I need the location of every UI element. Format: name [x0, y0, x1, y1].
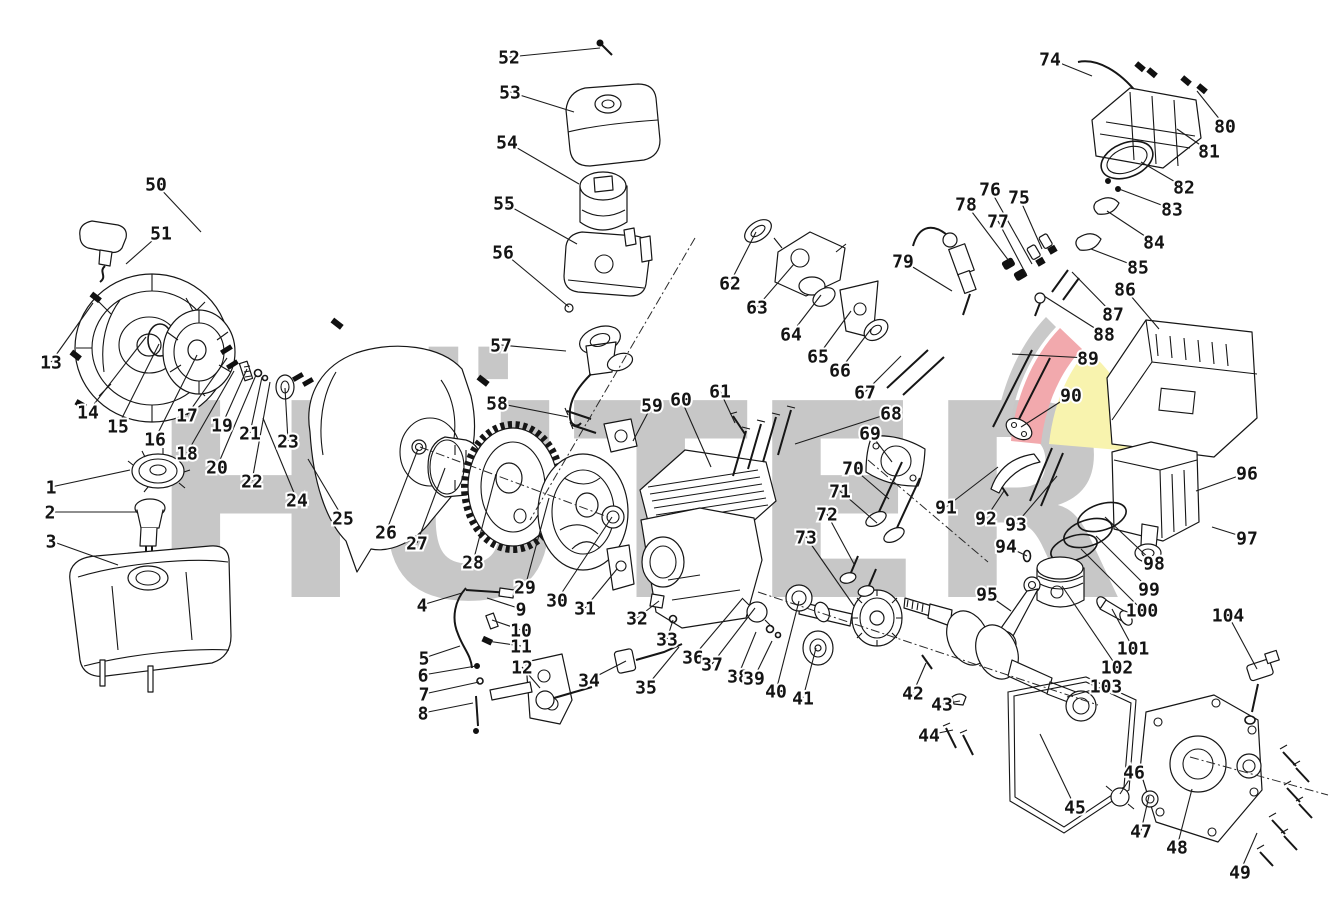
part-label-8: 8	[418, 704, 429, 725]
part-label-48: 48	[1166, 838, 1188, 859]
part-label-76: 76	[979, 180, 1001, 201]
part-label-68: 68	[880, 404, 902, 425]
part-label-22: 22	[241, 472, 263, 493]
part-label-85: 85	[1127, 258, 1149, 279]
starter-grip	[80, 221, 127, 282]
part-label-80: 80	[1214, 117, 1236, 138]
part-label-30: 30	[546, 591, 568, 612]
fuel-tank	[70, 546, 231, 692]
leader-line-45	[1040, 734, 1075, 807]
part-label-104: 104	[1212, 606, 1245, 627]
part-label-52: 52	[498, 48, 520, 69]
part-label-98: 98	[1143, 554, 1165, 575]
part-label-35: 35	[635, 678, 657, 699]
part-label-89: 89	[1077, 349, 1099, 370]
part-label-53: 53	[499, 83, 521, 104]
part-label-27: 27	[406, 534, 428, 555]
part-label-20: 20	[206, 458, 228, 479]
part-label-3: 3	[46, 532, 57, 553]
part-label-40: 40	[765, 682, 787, 703]
part-label-12: 12	[511, 658, 533, 679]
part-label-69: 69	[859, 424, 881, 445]
part-label-79: 79	[892, 252, 914, 273]
cover-bolts	[1257, 745, 1312, 866]
diagram-canvas: HÜTER	[0, 0, 1339, 912]
part-label-72: 72	[816, 505, 838, 526]
part-label-71: 71	[829, 482, 851, 503]
part-label-83: 83	[1161, 200, 1183, 221]
part-label-96: 96	[1236, 464, 1258, 485]
part-label-101: 101	[1117, 639, 1150, 660]
part-label-25: 25	[332, 509, 354, 530]
leader-line-6	[423, 666, 476, 675]
part-label-92: 92	[975, 509, 997, 530]
part-label-6: 6	[418, 666, 429, 687]
part-label-42: 42	[902, 684, 924, 705]
part-label-32: 32	[626, 609, 648, 630]
part-label-13: 13	[40, 353, 62, 374]
part-label-50: 50	[145, 175, 167, 196]
part-label-18: 18	[176, 444, 198, 465]
valve-cover-box	[1107, 320, 1257, 457]
part-label-7: 7	[419, 685, 430, 706]
part-label-77: 77	[987, 212, 1009, 233]
leader-line-8	[423, 703, 473, 713]
air-filter-base	[564, 228, 652, 296]
exploded-diagram-page: HÜTER	[0, 0, 1339, 912]
front-bearing	[602, 506, 624, 528]
part-label-60: 60	[670, 390, 692, 411]
air-filter-cover	[566, 84, 660, 166]
part-label-44: 44	[918, 726, 940, 747]
part-label-9: 9	[516, 600, 527, 621]
part-label-47: 47	[1130, 822, 1152, 843]
part-label-91: 91	[935, 498, 957, 519]
part-label-57: 57	[490, 336, 512, 357]
part-label-28: 28	[462, 553, 484, 574]
part-label-31: 31	[574, 599, 596, 620]
part-label-61: 61	[709, 382, 731, 403]
top-screw	[597, 40, 612, 55]
part-label-100: 100	[1126, 601, 1159, 622]
part-label-37: 37	[701, 655, 723, 676]
part-label-65: 65	[807, 347, 829, 368]
part-label-14: 14	[77, 403, 99, 424]
part-label-4: 4	[417, 596, 428, 617]
part-label-95: 95	[976, 585, 998, 606]
part-label-43: 43	[931, 695, 953, 716]
part-label-97: 97	[1236, 529, 1258, 550]
part-label-99: 99	[1138, 580, 1160, 601]
part-label-15: 15	[107, 417, 129, 438]
leader-line-1	[51, 470, 130, 487]
fuel-valve	[490, 654, 592, 724]
spark-arrester	[1076, 198, 1119, 251]
part-label-45: 45	[1064, 798, 1086, 819]
part-label-46: 46	[1123, 763, 1145, 784]
part-label-84: 84	[1143, 233, 1165, 254]
part-label-66: 66	[829, 361, 851, 382]
oil-sensor	[1245, 650, 1279, 724]
leader-line-7	[424, 682, 479, 694]
muffler	[1112, 442, 1199, 562]
leader-line-55	[504, 203, 577, 244]
part-label-11: 11	[510, 637, 532, 658]
part-label-62: 62	[719, 274, 741, 295]
part-label-70: 70	[842, 459, 864, 480]
part-label-33: 33	[656, 630, 678, 651]
part-label-29: 29	[514, 578, 536, 599]
part-label-63: 63	[746, 298, 768, 319]
part-label-17: 17	[176, 406, 198, 427]
part-label-93: 93	[1005, 515, 1027, 536]
part-label-21: 21	[239, 424, 261, 445]
part-label-59: 59	[641, 396, 663, 417]
part-label-102: 102	[1101, 658, 1134, 679]
muffler-shield	[1092, 62, 1207, 192]
part-label-56: 56	[492, 243, 514, 264]
part-label-58: 58	[486, 394, 508, 415]
part-label-64: 64	[780, 325, 802, 346]
part-label-74: 74	[1039, 50, 1061, 71]
part-label-26: 26	[375, 523, 397, 544]
part-label-24: 24	[286, 491, 308, 512]
part-label-78: 78	[955, 195, 977, 216]
part-label-34: 34	[578, 671, 600, 692]
part-label-87: 87	[1102, 305, 1124, 326]
spark-plug	[913, 228, 976, 315]
part-label-23: 23	[277, 432, 299, 453]
part-label-75: 75	[1008, 188, 1030, 209]
part-label-55: 55	[493, 194, 515, 215]
part-label-94: 94	[995, 537, 1017, 558]
part-label-67: 67	[854, 383, 876, 404]
part-label-19: 19	[211, 416, 233, 437]
part-label-49: 49	[1229, 863, 1251, 884]
air-filter-element	[580, 172, 627, 230]
part-label-41: 41	[792, 689, 814, 710]
flywheel-nut	[412, 440, 426, 454]
part-label-16: 16	[144, 430, 166, 451]
valve-keepers	[1002, 233, 1057, 281]
crankcase-cover	[1008, 677, 1262, 842]
part-label-73: 73	[795, 528, 817, 549]
part-label-88: 88	[1093, 325, 1115, 346]
part-label-51: 51	[150, 224, 172, 245]
part-label-1: 1	[46, 478, 57, 499]
part-label-86: 86	[1114, 280, 1136, 301]
part-label-103: 103	[1090, 677, 1123, 698]
part-label-39: 39	[743, 669, 765, 690]
part-label-54: 54	[496, 133, 518, 154]
part-label-82: 82	[1173, 178, 1195, 199]
part-label-2: 2	[45, 503, 56, 524]
part-label-81: 81	[1198, 142, 1220, 163]
kill-wire	[1078, 61, 1137, 93]
leader-line-52	[509, 48, 600, 57]
part-label-90: 90	[1060, 386, 1082, 407]
rocker-pivots	[1035, 270, 1079, 316]
